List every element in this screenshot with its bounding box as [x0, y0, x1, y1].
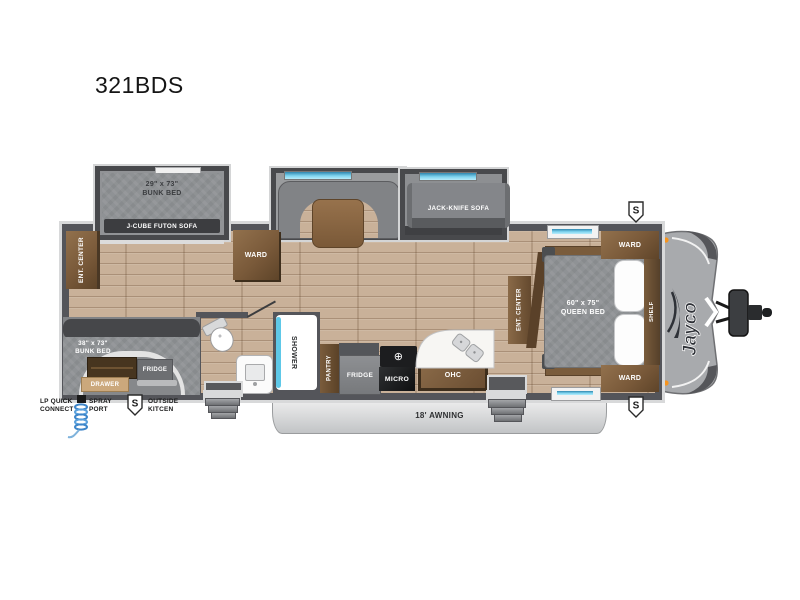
- shower-glass: [276, 317, 281, 388]
- rear-ent-center-label: ENT. CENTER: [66, 231, 97, 289]
- kitchen-counter: [414, 327, 496, 369]
- dinette-window: [284, 171, 352, 180]
- rear-bunk-assembly: 38" x 73" BUNK BED FRIDGE DRAWER: [63, 317, 200, 395]
- microwave: MICRO: [379, 367, 415, 391]
- bunk-size: 29" x 73": [100, 181, 224, 190]
- speaker-symbol: S: [633, 401, 640, 412]
- speaker-badge-outside-kitchen: S: [127, 394, 143, 416]
- outside-kitchen-label: OUTSIDE KITCEN: [148, 398, 178, 413]
- outside-kitchen-line2: KITCEN: [148, 406, 178, 414]
- queen-bed-name: QUEEN BED: [547, 309, 619, 318]
- bedroom-shelf-label: SHELF: [644, 259, 660, 365]
- queen-bed: 60" x 75" QUEEN BED: [544, 255, 647, 368]
- shower-label: SHOWER: [290, 323, 297, 383]
- bath-sink: [245, 364, 265, 381]
- bunk-name: BUNK BED: [100, 190, 224, 199]
- hitch-knob: [762, 308, 772, 317]
- burner-icon: ⊕: [380, 346, 417, 367]
- bath-faucet: [253, 382, 257, 386]
- marker-light-top: [663, 237, 668, 242]
- kitchen-fridge-label: FRIDGE: [340, 356, 380, 394]
- marker-light-bottom: [663, 380, 668, 385]
- bedroom-window-bottom: [551, 387, 601, 401]
- bedroom-window-bottom-glass: [557, 391, 593, 395]
- futon-platform: [100, 240, 224, 244]
- spray-label-line1: SPRAY: [89, 398, 112, 406]
- pantry: PANTRY: [320, 344, 339, 393]
- awning-label: 18' AWNING: [273, 411, 606, 420]
- speaker-symbol: S: [132, 399, 139, 410]
- shower-pan: SHOWER: [276, 315, 317, 390]
- jackknife-label: JACK-KNIFE SOFA: [412, 205, 505, 212]
- dinette-table: [312, 199, 364, 248]
- mid-ward: WARD: [233, 230, 279, 280]
- bedroom-ward-top: WARD: [601, 231, 659, 259]
- page-title: 321BDS: [95, 72, 184, 99]
- speaker-symbol: S: [633, 206, 640, 217]
- counter-top: [416, 330, 494, 368]
- speaker-badge-bottom-right: S: [628, 396, 644, 418]
- pillow-top: [614, 260, 646, 312]
- outside-kitchen-line1: OUTSIDE: [148, 398, 178, 406]
- outside-fridge: FRIDGE: [137, 359, 173, 381]
- outside-kitchen-tray: [137, 380, 177, 386]
- microwave-label: MICRO: [379, 367, 415, 391]
- jackknife-slideout: JACK-KNIFE SOFA: [400, 169, 507, 240]
- jackknife-sofa: JACK-KNIFE SOFA: [407, 183, 510, 228]
- cabinet-shelf-line: [91, 367, 133, 369]
- cooktop: ⊕: [380, 346, 417, 367]
- outside-kitchen-cabinet: [87, 357, 137, 379]
- outside-fridge-label: FRIDGE: [138, 360, 172, 380]
- rear-ent-center: ENT. CENTER: [66, 231, 100, 289]
- drawer: DRAWER: [81, 377, 129, 392]
- jackknife-sofa-front: [412, 218, 505, 228]
- bedroom-shelf: SHELF: [644, 259, 660, 365]
- bath-entry-step-3: [211, 412, 236, 419]
- lp-quick-connect-label: LP QUICK CONNECT: [40, 398, 74, 413]
- main-entry-step-3: [494, 414, 522, 422]
- front-cap: Jayco: [652, 220, 782, 405]
- spray-label-line2: PORT: [89, 406, 112, 414]
- futon-sofa: J-CUBE FUTON SOFA: [104, 219, 220, 233]
- speaker-badge-top: S: [628, 201, 644, 223]
- brand-logo: Jayco: [680, 302, 701, 356]
- rear-bunk-size: 38" x 73": [65, 340, 121, 348]
- bunk-slideout: 29" x 73" BUNK BED J-CUBE FUTON SOFA: [95, 166, 229, 240]
- pillow-bottom: [614, 314, 646, 366]
- lp-label-line1: LP QUICK: [40, 398, 74, 406]
- toilet: [202, 318, 242, 356]
- lp-port-icon: [77, 395, 86, 403]
- queen-bed-size: 60" x 75": [547, 300, 619, 309]
- kitchen-fridge: FRIDGE: [339, 355, 381, 395]
- pantry-label: PANTRY: [320, 344, 339, 393]
- floorplan-canvas: 321BDS 18' AWNING Jayco 29" x 73" BUNK B…: [0, 0, 800, 600]
- spray-port-label: SPRAY PORT: [89, 398, 112, 413]
- jackknife-window: [419, 172, 477, 181]
- tongue-jack: [729, 290, 748, 336]
- bedroom-window-top-glass: [552, 229, 592, 234]
- hitch-coupler: [748, 305, 762, 320]
- hose-end: [68, 430, 79, 437]
- bunk-size-label: 29" x 73" BUNK BED: [100, 181, 224, 198]
- queen-bed-label: 60" x 75" QUEEN BED: [547, 300, 619, 317]
- drawer-label: DRAWER: [82, 378, 128, 391]
- lp-label-line2: CONNECT: [40, 406, 74, 414]
- bedroom-window-top: [547, 225, 599, 239]
- bedroom-ward-bottom: WARD: [601, 365, 659, 392]
- hose-coil-icon: [75, 424, 87, 429]
- shower-stall: SHOWER: [273, 312, 320, 393]
- fridge-counter-band: [339, 343, 379, 355]
- rear-bunk-bolster: [63, 319, 200, 339]
